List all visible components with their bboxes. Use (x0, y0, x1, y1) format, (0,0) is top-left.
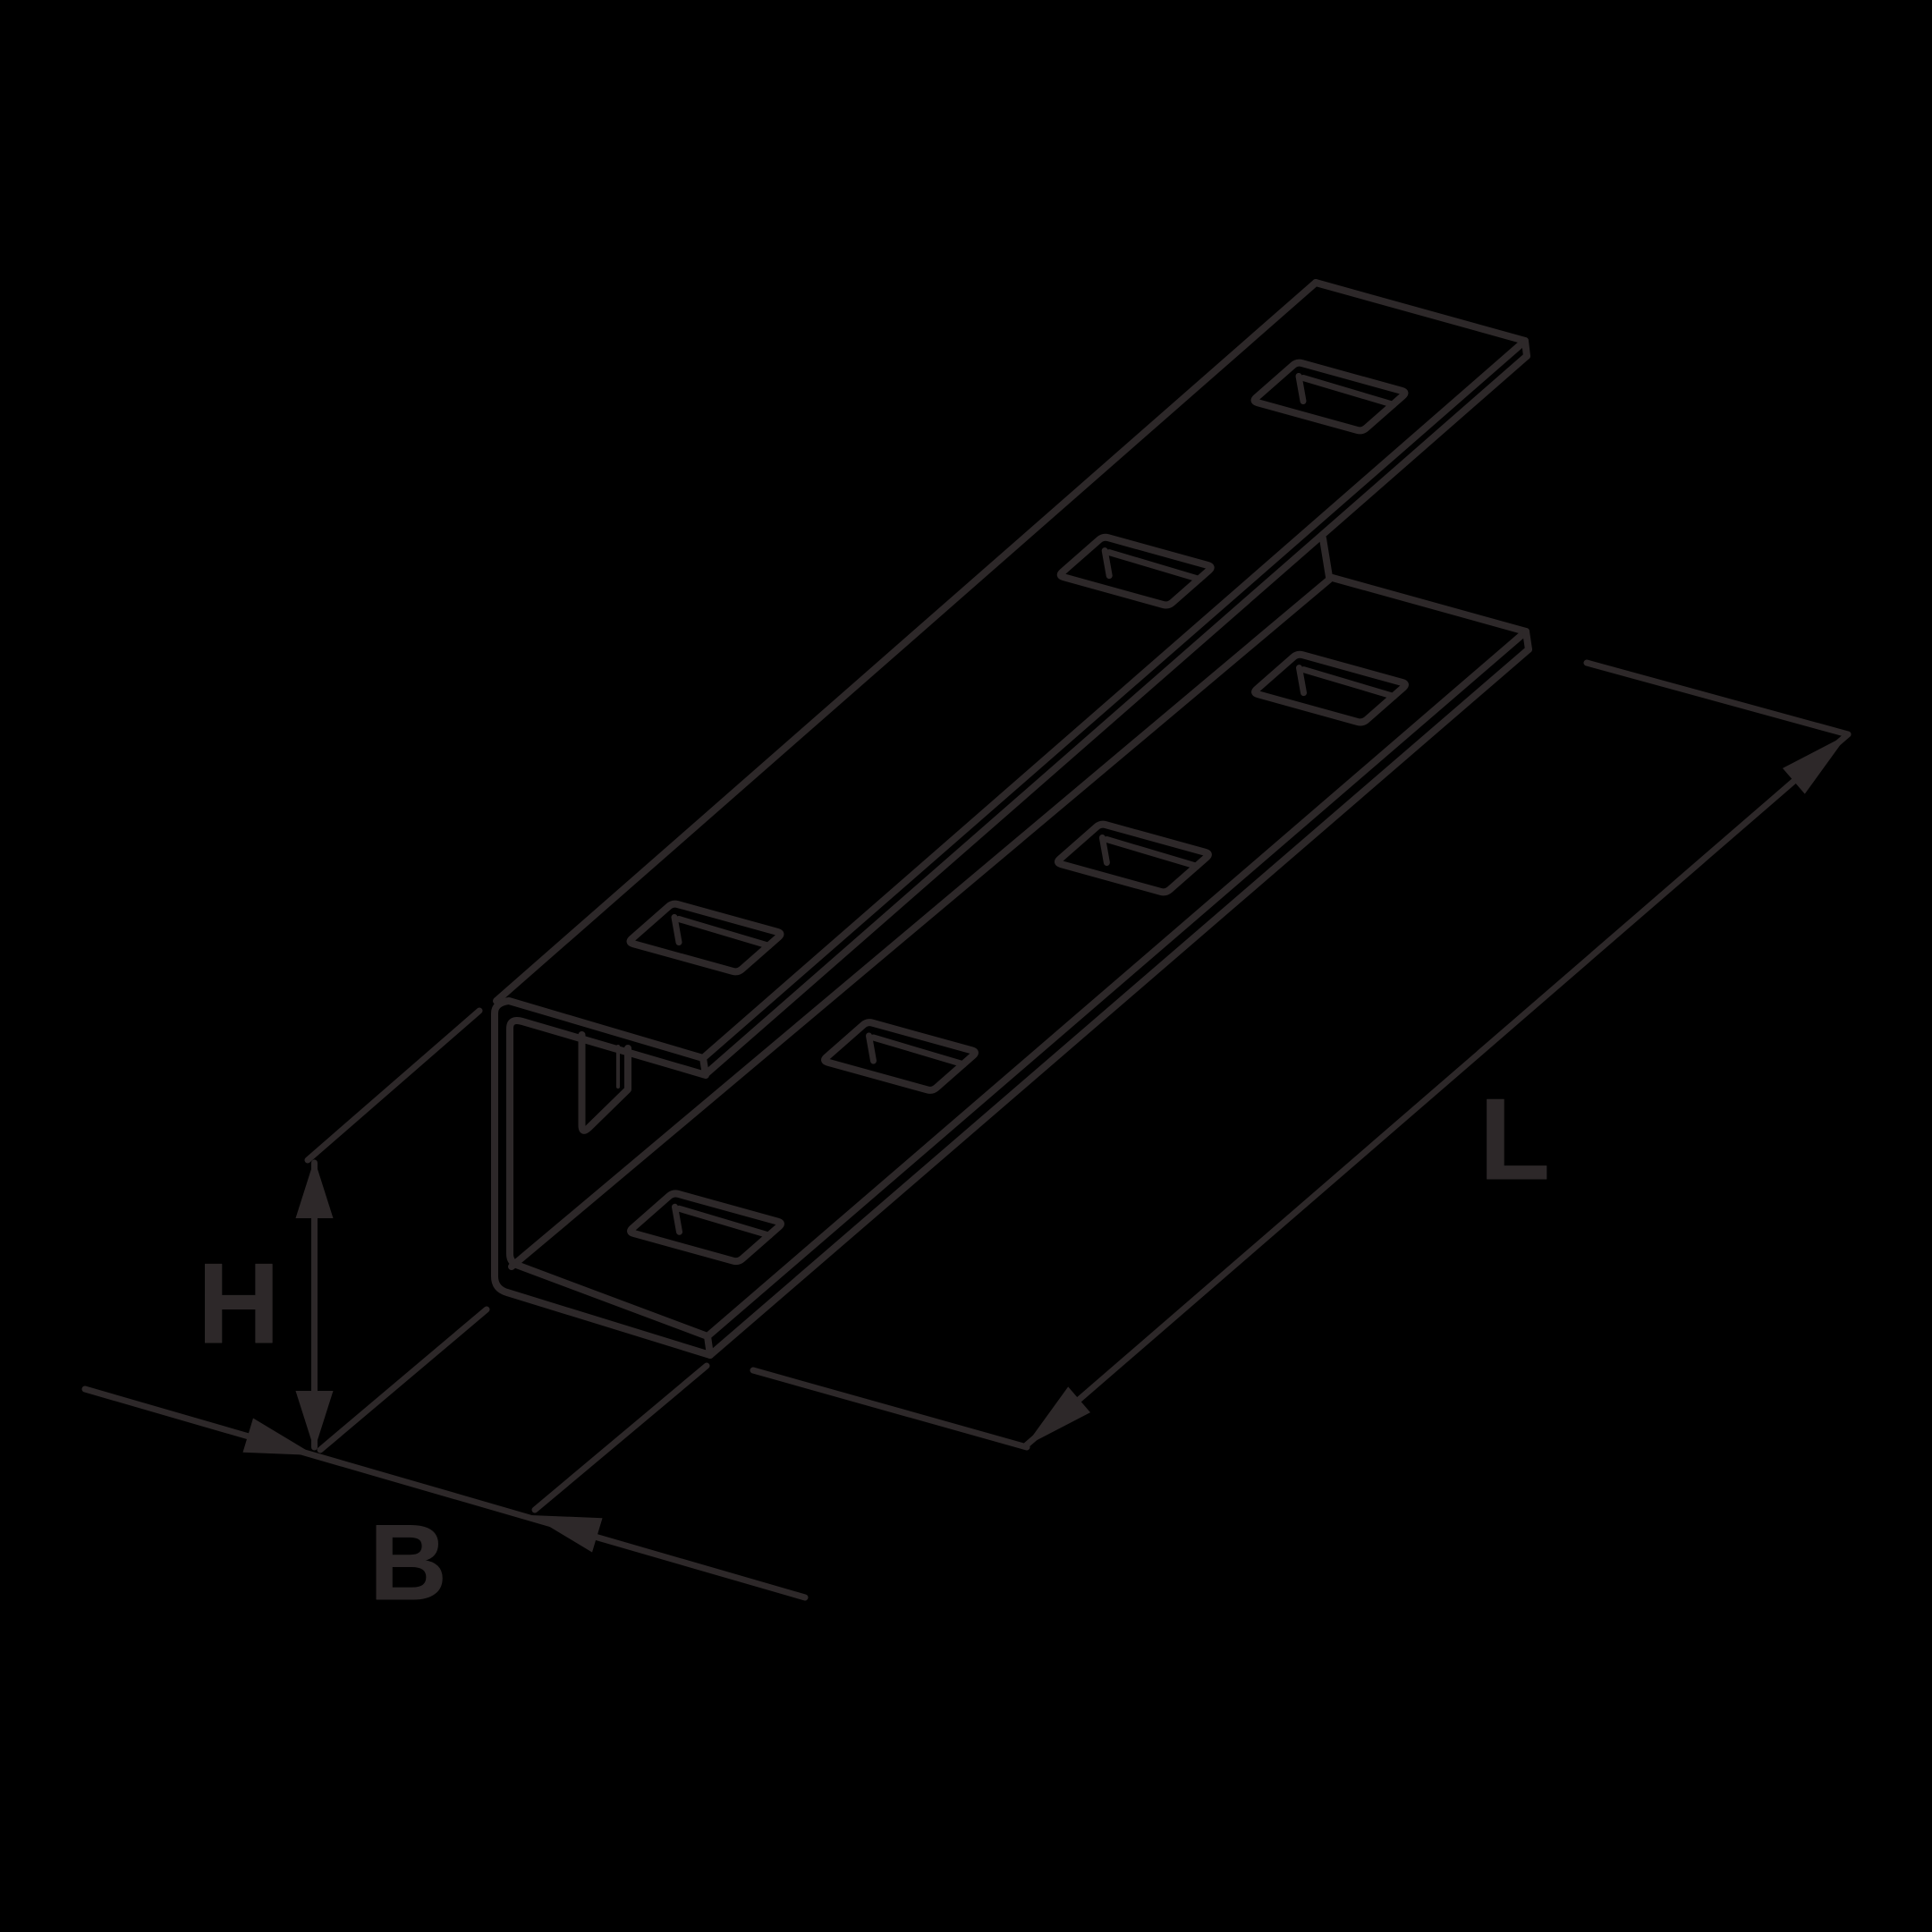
svg-text:B: B (369, 1503, 447, 1623)
svg-text:L: L (1479, 1075, 1550, 1204)
svg-text:H: H (198, 1240, 280, 1367)
